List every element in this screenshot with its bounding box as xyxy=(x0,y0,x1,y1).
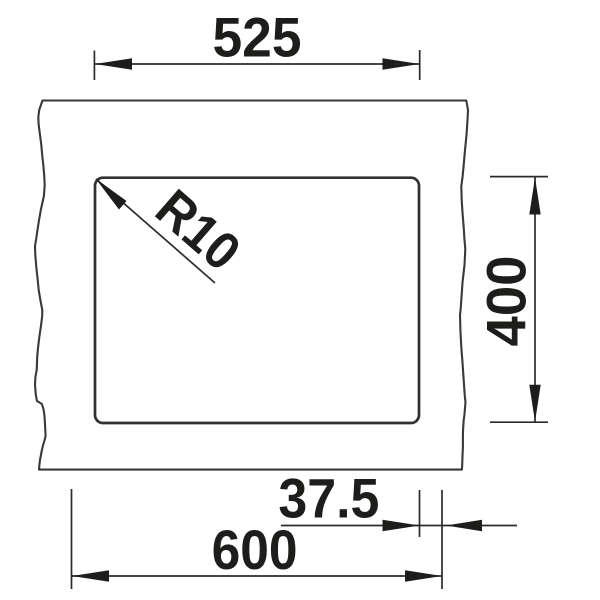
svg-text:400: 400 xyxy=(474,256,537,347)
svg-text:525: 525 xyxy=(213,5,302,68)
svg-text:600: 600 xyxy=(212,518,298,581)
